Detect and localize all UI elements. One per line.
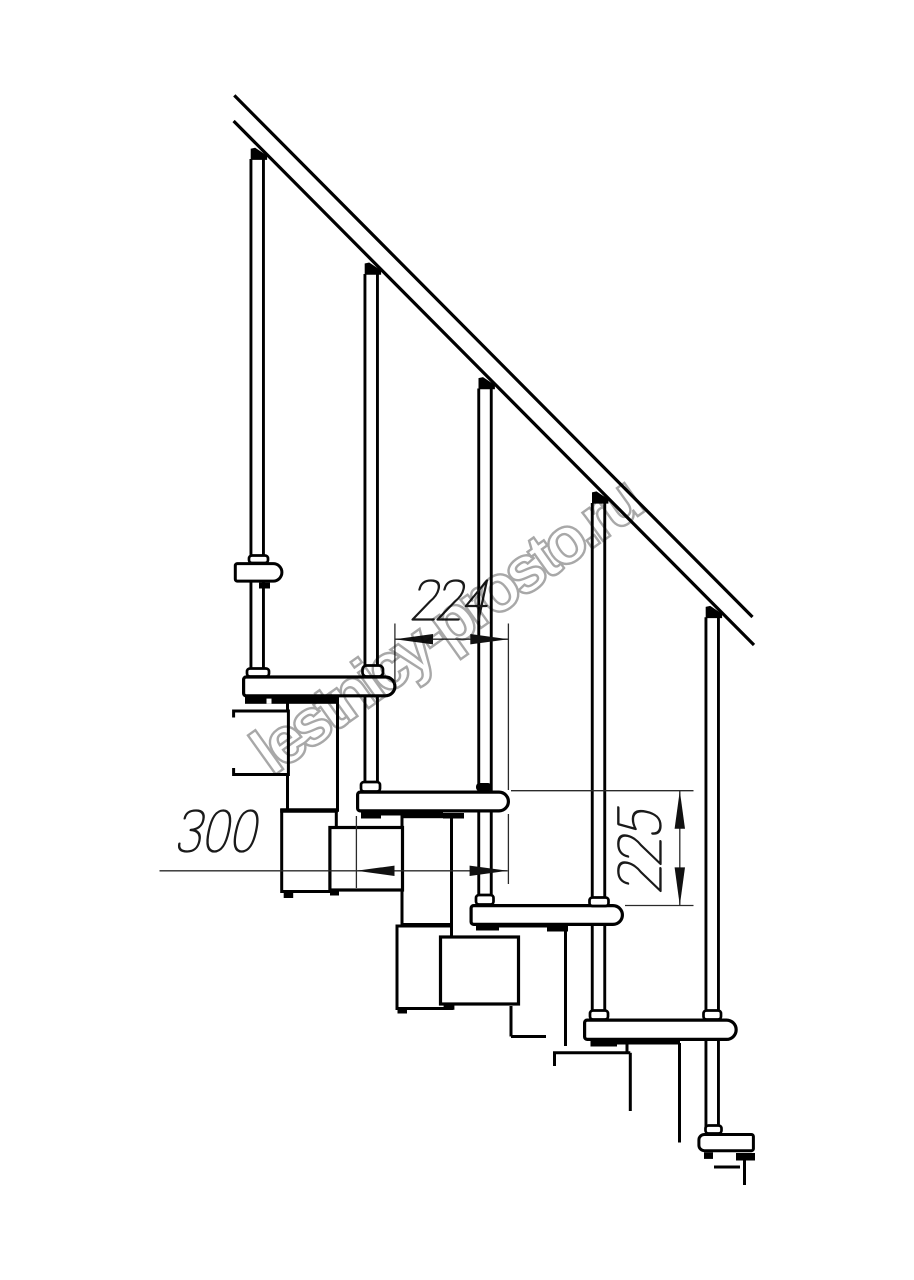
svg-text:lestnicy-prosto.ru: lestnicy-prosto.ru [237, 462, 653, 788]
